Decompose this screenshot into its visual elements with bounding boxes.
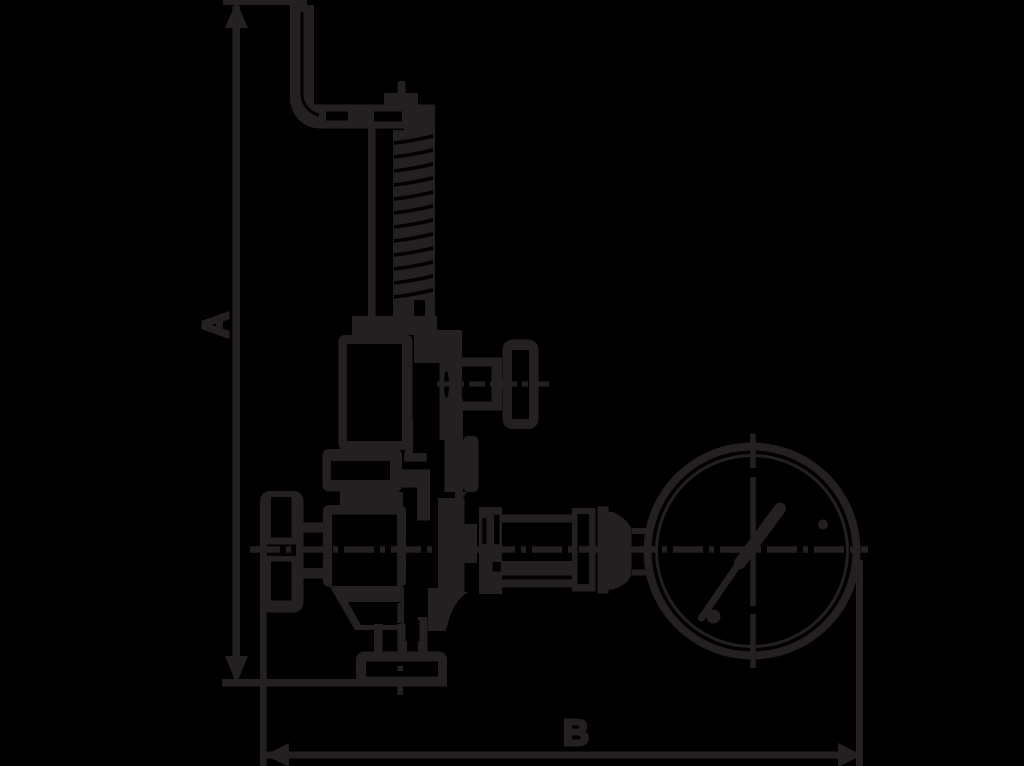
svg-text:B: B bbox=[563, 712, 589, 753]
svg-text:A: A bbox=[195, 312, 236, 338]
